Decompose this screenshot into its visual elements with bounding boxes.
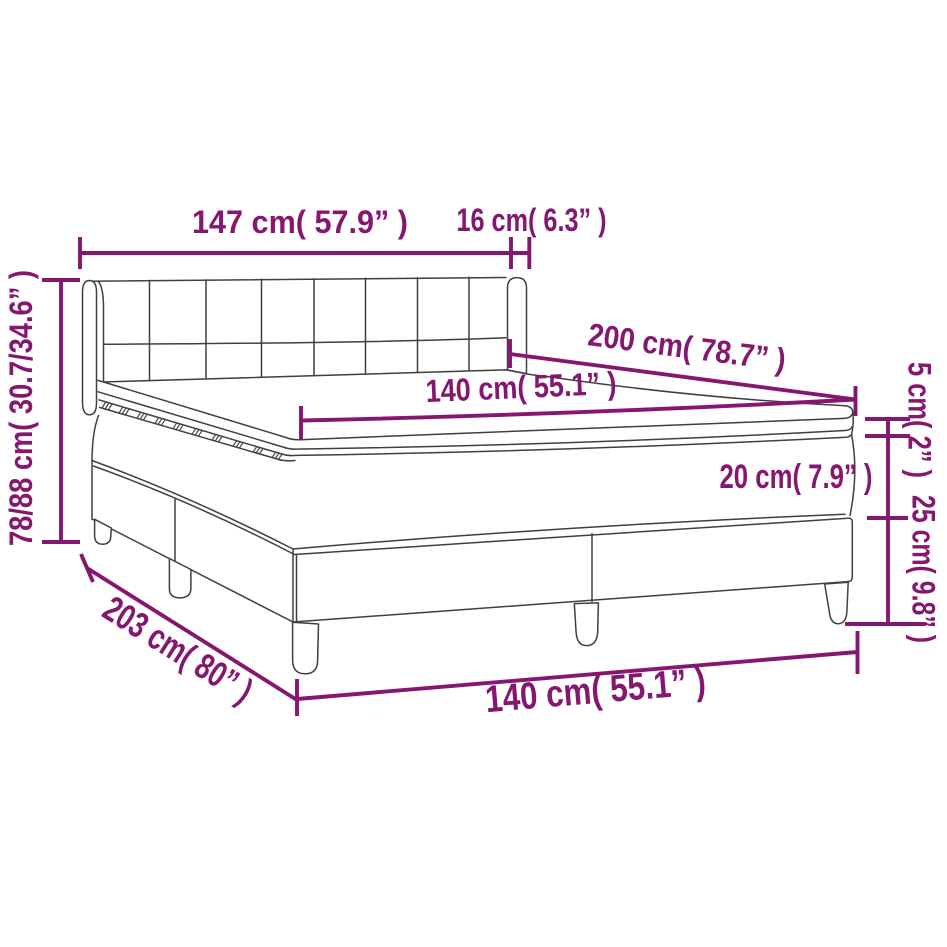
svg-text:78/88 cm( 30.7/34.6” ): 78/88 cm( 30.7/34.6” ) [3,270,39,546]
svg-text:203 cm( 80” ): 203 cm( 80” ) [96,588,260,712]
svg-text:20 cm( 7.9” ): 20 cm( 7.9” ) [720,458,873,496]
svg-text:140 cm( 55.1” ): 140 cm( 55.1” ) [484,661,708,721]
svg-text:25 cm( 9.8” ): 25 cm( 9.8” ) [905,495,941,643]
svg-text:147 cm( 57.9” ): 147 cm( 57.9” ) [192,204,408,240]
svg-text:16 cm( 6.3” ): 16 cm( 6.3” ) [457,202,607,238]
svg-text:140 cm( 55.1” ): 140 cm( 55.1” ) [425,365,617,409]
svg-text:5 cm( 2” ): 5 cm( 2” ) [901,362,937,478]
